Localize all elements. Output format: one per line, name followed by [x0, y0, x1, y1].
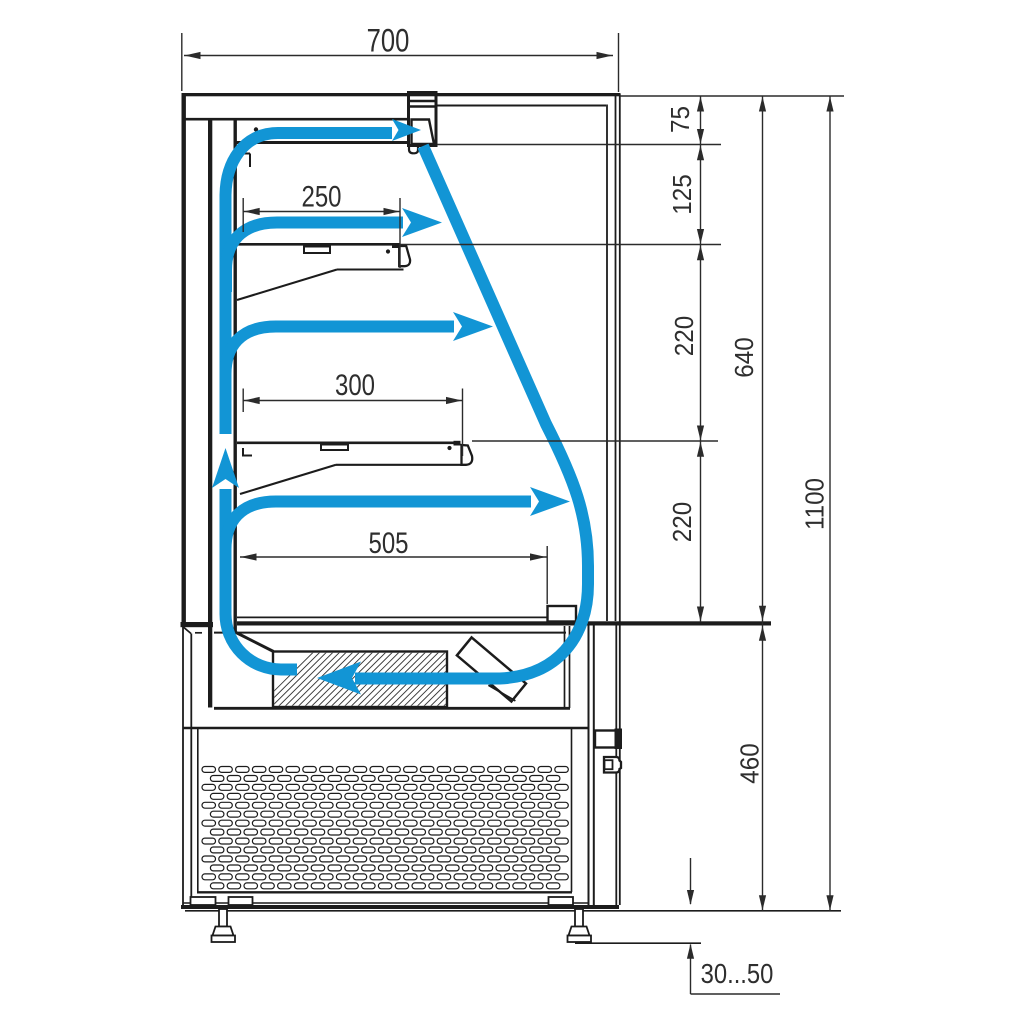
svg-text:125: 125 — [669, 174, 698, 214]
svg-text:220: 220 — [669, 502, 698, 542]
svg-text:700: 700 — [367, 24, 410, 59]
svg-text:220: 220 — [671, 316, 700, 356]
svg-text:640: 640 — [731, 337, 760, 377]
svg-text:250: 250 — [301, 179, 341, 213]
svg-text:460: 460 — [736, 743, 765, 783]
svg-text:505: 505 — [368, 525, 408, 559]
svg-text:30...50: 30...50 — [701, 957, 774, 989]
svg-text:300: 300 — [335, 367, 375, 401]
svg-text:75: 75 — [667, 106, 696, 133]
svg-text:1100: 1100 — [801, 478, 830, 530]
